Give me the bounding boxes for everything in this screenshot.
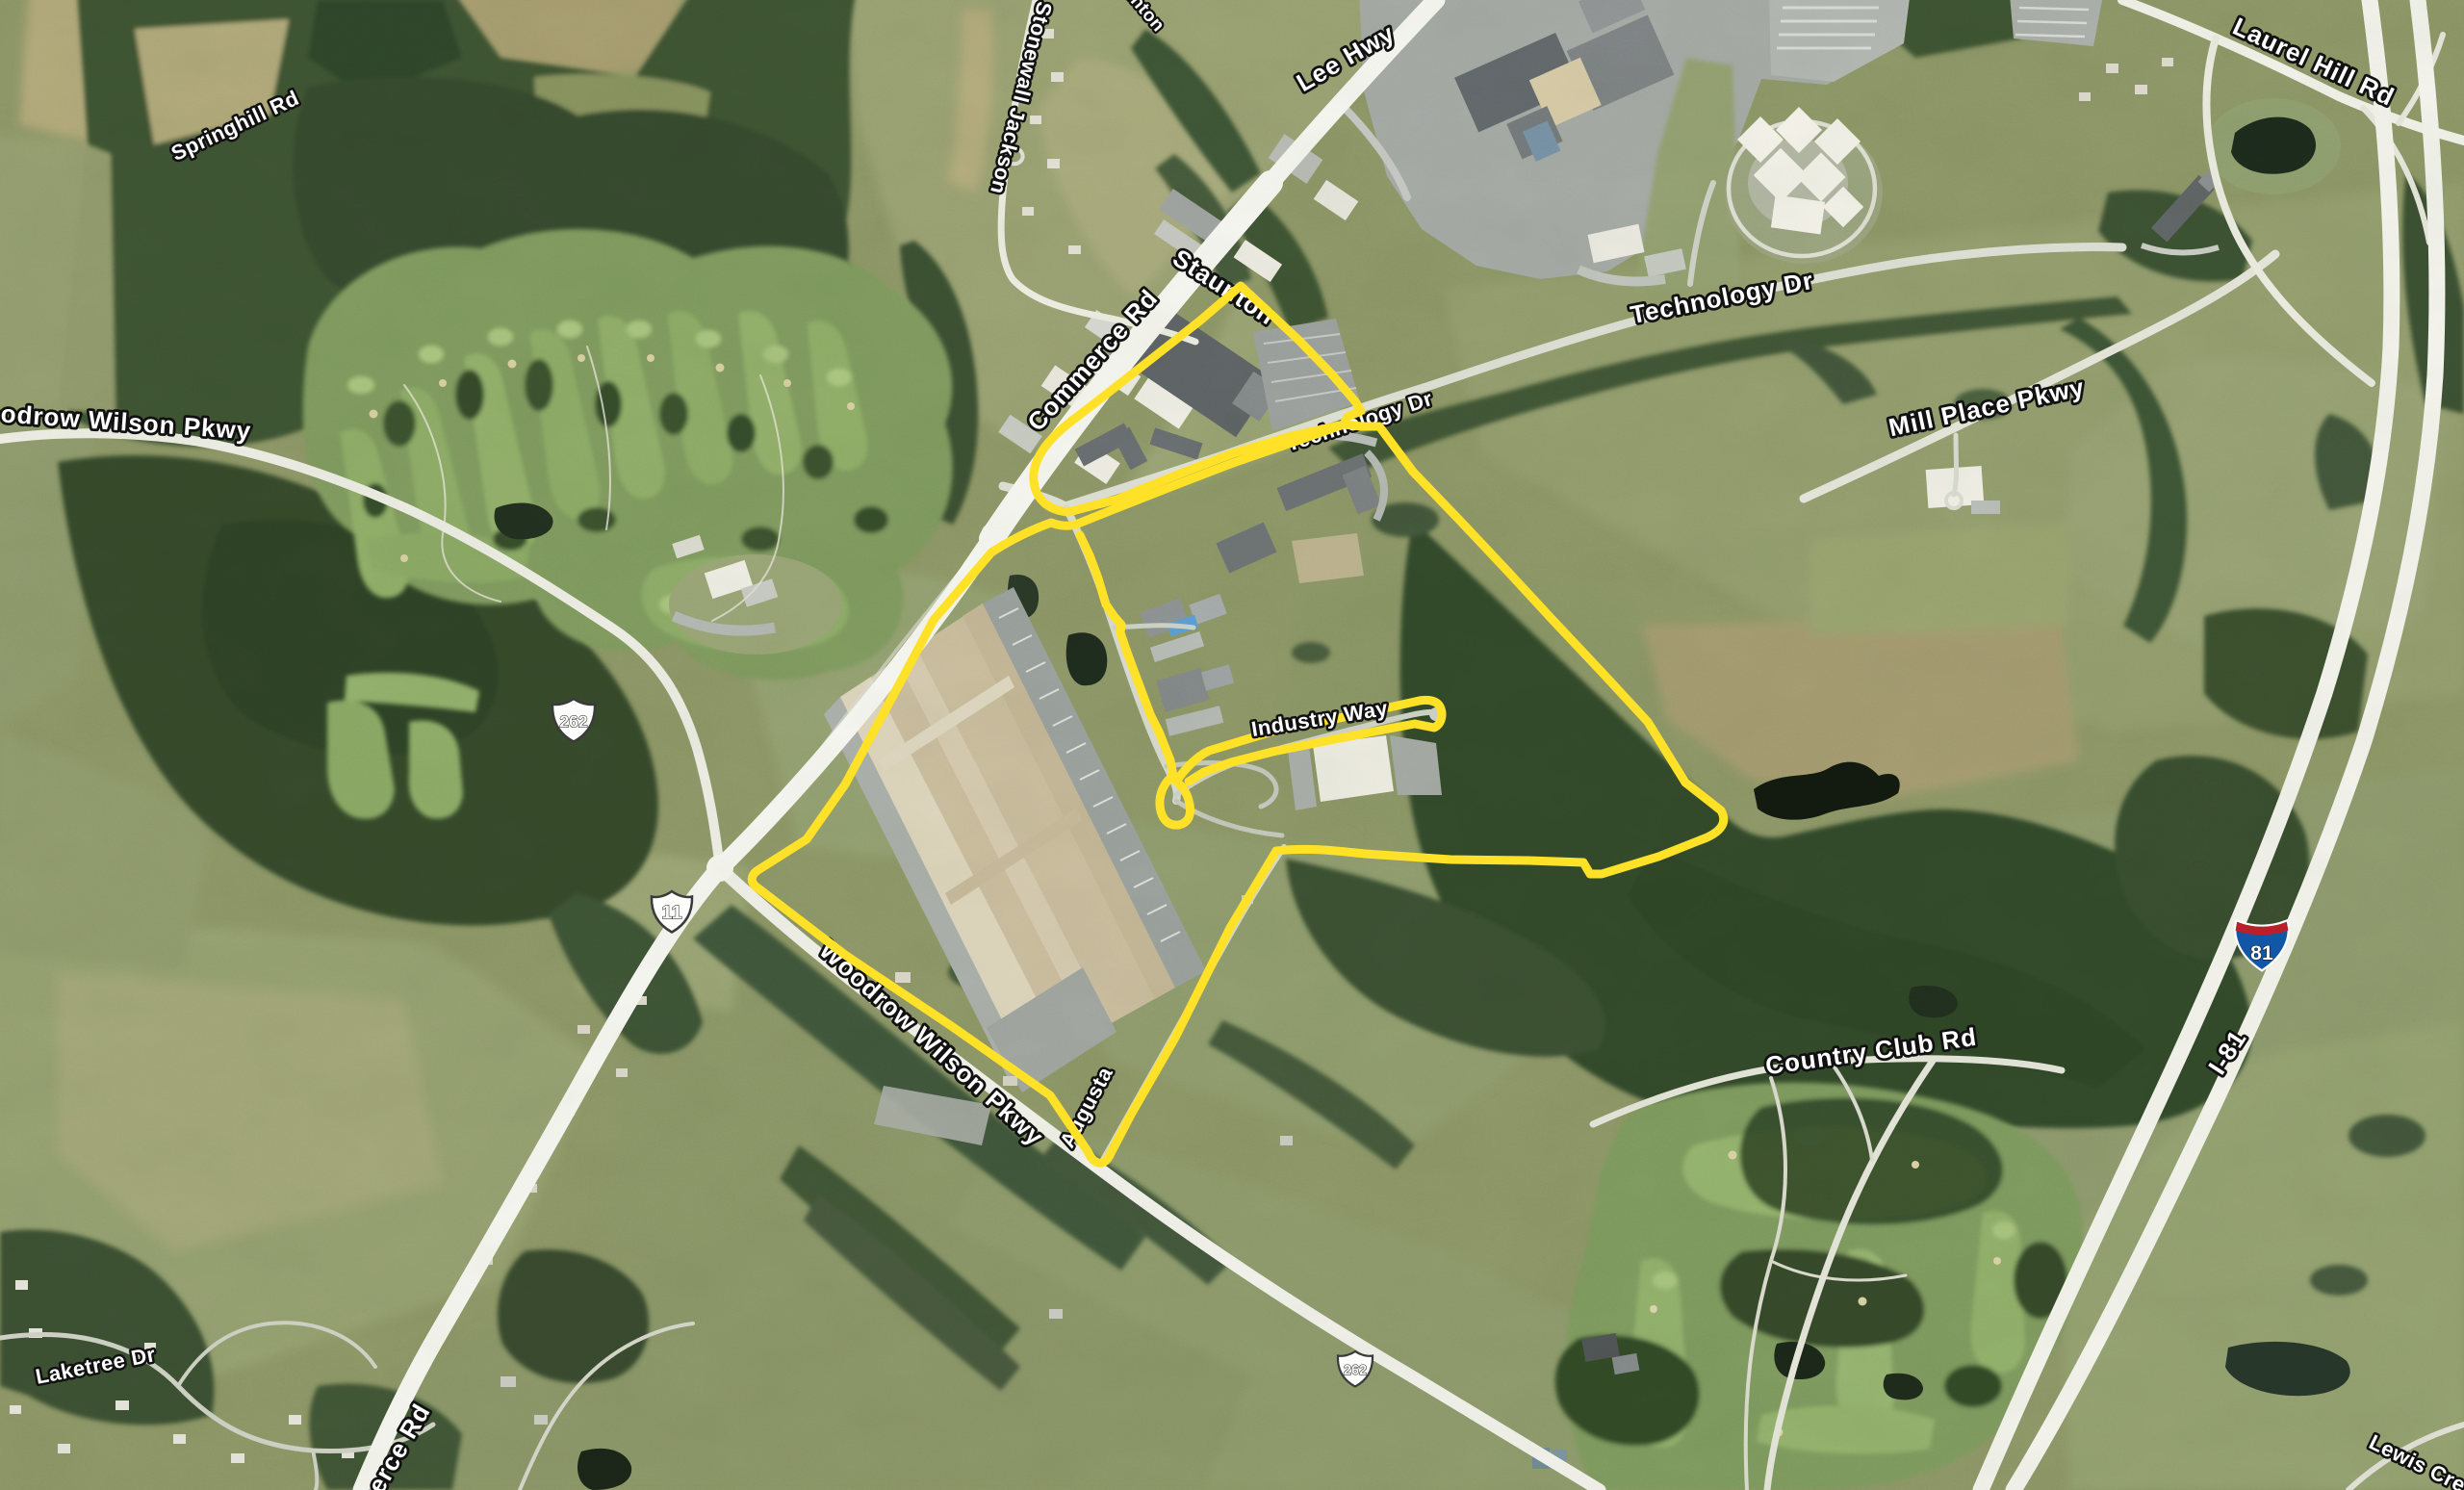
svg-text:81: 81 bbox=[2250, 941, 2273, 964]
svg-text:262: 262 bbox=[559, 712, 587, 732]
svg-text:11: 11 bbox=[661, 903, 681, 924]
svg-text:262: 262 bbox=[1344, 1363, 1367, 1378]
